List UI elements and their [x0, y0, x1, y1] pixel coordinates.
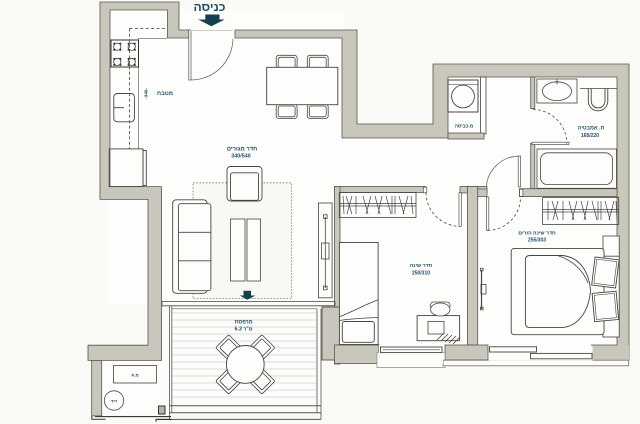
svg-text:חדר שינה: חדר שינה	[410, 263, 433, 269]
svg-text:ח. אמבטיה: ח. אמבטיה	[578, 126, 605, 132]
svg-text:חדר שינה הורים: חדר שינה הורים	[518, 231, 556, 237]
svg-text:מ.כביסה: מ.כביסה	[455, 125, 474, 130]
svg-text:מטבח: מטבח	[157, 91, 173, 97]
svg-text:חדר מגורים: חדר מגורים	[227, 147, 257, 153]
svg-text:דוד: דוד	[111, 399, 118, 404]
svg-text:6.3 מ"ר: 6.3 מ"ר	[235, 327, 253, 333]
svg-text:מרפסת: מרפסת	[235, 320, 253, 326]
svg-text:165/220: 165/220	[581, 133, 599, 139]
svg-text:כניסה: כניסה	[194, 2, 226, 14]
svg-text:340/540: 340/540	[231, 153, 251, 159]
svg-text:250/310: 250/310	[412, 271, 430, 277]
svg-text:-340-: -340-	[143, 88, 148, 99]
svg-text:255/303: 255/303	[528, 237, 546, 243]
svg-text:מ.א: מ.א	[131, 373, 138, 378]
